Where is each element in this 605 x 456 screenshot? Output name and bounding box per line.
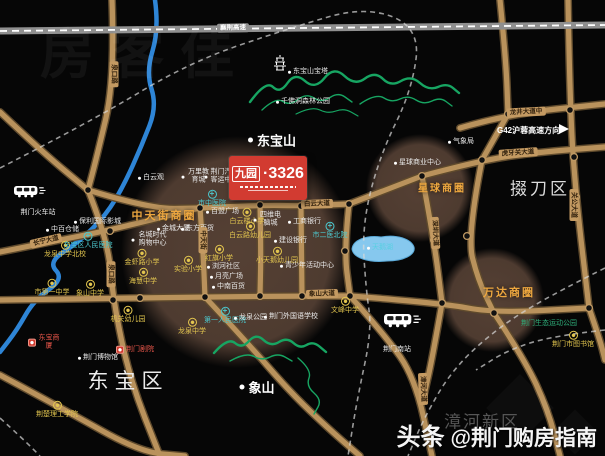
school-icon	[124, 306, 133, 315]
school-icon	[188, 318, 197, 327]
train-icon	[14, 186, 46, 197]
project-logo-badge: 九园 ·3326	[229, 156, 307, 200]
poi-text: 荆门火车站	[21, 209, 56, 217]
hospital-cross-icon: +	[84, 232, 93, 241]
poi-dot-icon	[448, 140, 451, 143]
school-icon	[86, 280, 95, 289]
project-number: ·3326	[263, 165, 304, 183]
poi-sch-label: 荆门市图书馆	[552, 331, 594, 349]
poi-text: 金虾路小学	[125, 259, 160, 267]
business-zone-label: 万达商圈	[483, 284, 535, 300]
poi-text: 龙泉中学北校	[44, 251, 86, 259]
peak-dot-icon	[239, 385, 244, 390]
poi-dot-icon	[132, 239, 135, 242]
poi-text: 荆门博物馆	[83, 354, 118, 362]
poi-text: 龙泉公园	[239, 314, 267, 322]
poi-wh-label: 保利国际影城	[74, 218, 121, 226]
poi-wh-label: 浏河社区	[207, 263, 240, 271]
hospital-cross-icon: +	[221, 307, 230, 316]
poi-dot-icon	[288, 220, 291, 223]
road-name-pill: 泉口路	[110, 61, 119, 87]
poi-dot-icon	[394, 161, 397, 164]
poi-text: 市第一中学	[35, 289, 70, 297]
poi-hos-label: +市中医院	[198, 190, 226, 208]
poi-text: 青少年活动中心	[285, 262, 334, 270]
road-name-pill: 关公大道	[570, 189, 579, 221]
road-name-pill: 深圳大道	[430, 217, 441, 249]
poi-dot-icon	[212, 285, 215, 288]
toutiao-handle: @荆门购房指南	[451, 422, 597, 452]
poi-dot-icon	[367, 246, 370, 249]
hospital-cross-icon: +	[326, 222, 335, 231]
poi-text: 气象局	[453, 138, 474, 146]
pagoda-icon	[274, 55, 286, 70]
poi-text: 千佛洞森林公园	[281, 98, 330, 106]
peak-text: 象山	[248, 378, 274, 397]
poi-whc-label: 荆门火车站	[21, 209, 56, 217]
poi-text: 荆门南站	[383, 346, 411, 354]
train-icon	[384, 314, 421, 327]
corner-watermark: 房客佳	[40, 10, 250, 89]
district-label: 掇刀区	[510, 175, 570, 200]
poi-sch-label: 龙泉中学	[178, 318, 206, 336]
project-brand: 九园	[232, 166, 260, 182]
road-name-pill: 象山大道	[306, 289, 338, 299]
poi-text: 四维电脑城	[259, 212, 283, 229]
poi-text: 东宝商厦	[38, 335, 60, 352]
poi-sch-label: 海慧中学	[129, 268, 157, 286]
poi-text: 百盟广场	[211, 208, 239, 216]
poi-text: 白云路幼儿园	[229, 232, 271, 240]
road-name-pill: 泉口路	[107, 261, 116, 287]
poi-wh-label: 中百仓储	[46, 226, 79, 234]
poi-dot-icon	[234, 316, 237, 319]
poi-dot-icon	[157, 227, 160, 230]
poi-whw-label: 四维电脑城	[254, 212, 283, 229]
poi-dot-icon	[46, 228, 49, 231]
arrow-right-icon	[559, 124, 569, 134]
poi-text: 保利国际影城	[79, 218, 121, 226]
poi-dot-icon	[182, 176, 185, 179]
poi-text: 文峰中学	[331, 307, 359, 315]
school-icon	[243, 208, 252, 217]
peak-text: 东宝山	[257, 131, 296, 150]
poi-hos-label: +东宝区人民医院	[64, 232, 113, 250]
poi-sch-label: 实验小学	[174, 256, 202, 274]
poi-sch-label: 象山中学	[76, 280, 104, 298]
poi-wh-label: 青少年活动中心	[280, 262, 334, 270]
poi-dot-icon	[210, 275, 213, 278]
poi-whw-label: 名城时代购物中心	[132, 232, 169, 249]
poi-wh-label: 工商银行	[288, 218, 321, 226]
poi-dot-icon	[181, 227, 184, 230]
school-icon	[273, 247, 282, 256]
poi-grn-label: 荆门生态运动公园	[521, 320, 577, 328]
logo-tagline-rule-2	[248, 190, 288, 191]
school-icon	[215, 245, 224, 254]
poi-dot-icon	[254, 219, 257, 222]
poi-wh-label: 建设银行	[274, 237, 307, 245]
road-name-pill: 漳河大道	[418, 373, 428, 405]
poi-red-label: 荆门剧院	[116, 346, 154, 354]
road-name-pill: 中天街	[199, 227, 208, 253]
poi-sch-label: 文峰中学	[331, 297, 359, 315]
peak-dot-icon	[248, 138, 253, 143]
poi-wh-label: 白云观	[138, 174, 164, 182]
school-icon	[184, 256, 193, 265]
poi-dot-icon	[274, 239, 277, 242]
poi-wh-label: 气象局	[448, 138, 474, 146]
poi-sch-label: 金虾路小学	[125, 249, 160, 267]
poi-wh-label: 中南百货	[212, 283, 245, 291]
poi-dot-icon	[78, 356, 81, 359]
peak-label: 东宝山	[248, 131, 296, 150]
road-name-pill: 白云大道	[301, 199, 333, 209]
poi-text: 东宝区人民医院	[64, 242, 113, 250]
poi-dot-icon	[207, 265, 210, 268]
business-zone-label: 星球商圈	[418, 180, 466, 195]
poi-sch-label: 荆楚理工学院	[36, 401, 78, 419]
poi-dot-icon	[206, 210, 209, 213]
district-label: 东宝区	[88, 365, 169, 395]
poi-sch-label: 红旗小学	[205, 245, 233, 263]
poi-text: 中南百货	[217, 283, 245, 291]
poi-wh-label: 千佛洞森林公园	[276, 98, 330, 106]
peak-label: 象山	[239, 378, 274, 397]
school-icon	[569, 331, 578, 340]
poi-sch-label: 机关幼儿园	[111, 306, 146, 324]
poi-dot-icon	[264, 315, 267, 318]
poi-text: 荆门剧院	[126, 346, 154, 354]
poi-text: 月亮广场	[215, 273, 243, 281]
poi-dot-icon	[74, 220, 77, 223]
business-zone-label: 中天街商圈	[132, 207, 197, 223]
poi-whc-label: 荆门南站	[383, 346, 411, 354]
poi-dot-icon	[276, 100, 279, 103]
poi-wh-label: 星球商业中心	[394, 159, 441, 167]
poi-text: 荆门市图书馆	[552, 341, 594, 349]
project-logo-row: 九园 ·3326	[232, 165, 304, 183]
school-icon	[48, 279, 57, 288]
toutiao-watermark: 头条 @荆门购房指南	[397, 417, 597, 452]
poi-dot-icon	[280, 264, 283, 267]
poi-dot-icon	[288, 70, 291, 73]
poi-dot-icon	[205, 176, 208, 179]
poi-text: 浏河社区	[212, 263, 240, 271]
poi-sch-label: 市第一中学	[35, 279, 70, 297]
poi-text: 名城时代购物中心	[137, 232, 169, 249]
poi-text: 中百仓储	[51, 226, 79, 234]
poi-text: 实验小学	[174, 266, 202, 274]
location-map: 房客佳 龙泉中学北校市第一中学象山中学金虾路小学海慧中学实验小学红旗小学白云楼小…	[0, 0, 605, 456]
poi-wh-label: 荆门博物馆	[78, 354, 118, 362]
poi-text: 工商银行	[293, 218, 321, 226]
school-icon	[138, 249, 147, 258]
poi-wh-label: 百盟广场	[206, 208, 239, 216]
logo-tagline-rule	[240, 186, 296, 189]
poi-text: 白云观	[143, 174, 164, 182]
g42-direction-label: G42沪蓉高速方向	[497, 125, 560, 136]
poi-text: 天鹅湖	[372, 244, 393, 252]
poi-text: 龙泉中学	[178, 328, 206, 336]
poi-text: 象山中学	[76, 290, 104, 298]
road-name-pill: 襄荆高速	[217, 23, 249, 33]
poi-wh-label: 东方百货	[181, 225, 214, 233]
poi-teal-label: 天鹅湖	[367, 244, 393, 252]
poi-text: 荆门生态运动公园	[521, 320, 577, 328]
poi-text: 海慧中学	[129, 278, 157, 286]
red-landmark-icon	[28, 339, 36, 347]
poi-text: 市二医北院	[313, 232, 348, 240]
poi-red-label: 东宝商厦	[28, 335, 60, 352]
poi-wh-label: 荆门外国语学校	[264, 313, 318, 321]
school-icon	[139, 268, 148, 277]
poi-wh-label: 月亮广场	[210, 273, 243, 281]
toutiao-logo-text: 头条	[397, 417, 445, 452]
poi-text: 荆门外国语学校	[269, 313, 318, 321]
poi-text: 荆楚理工学院	[36, 411, 78, 419]
poi-text: 机关幼儿园	[111, 316, 146, 324]
red-landmark-icon	[116, 346, 124, 354]
hospital-cross-icon: +	[208, 190, 217, 199]
poi-dot-icon	[138, 176, 141, 179]
poi-wh-label: 东宝山宝塔	[288, 68, 328, 76]
poi-text: 建设银行	[279, 237, 307, 245]
poi-text: 星球商业中心	[399, 159, 441, 167]
school-icon	[341, 297, 350, 306]
poi-wh-label: 龙泉公园	[234, 314, 267, 322]
poi-text: 东宝山宝塔	[293, 68, 328, 76]
school-icon	[53, 401, 62, 410]
